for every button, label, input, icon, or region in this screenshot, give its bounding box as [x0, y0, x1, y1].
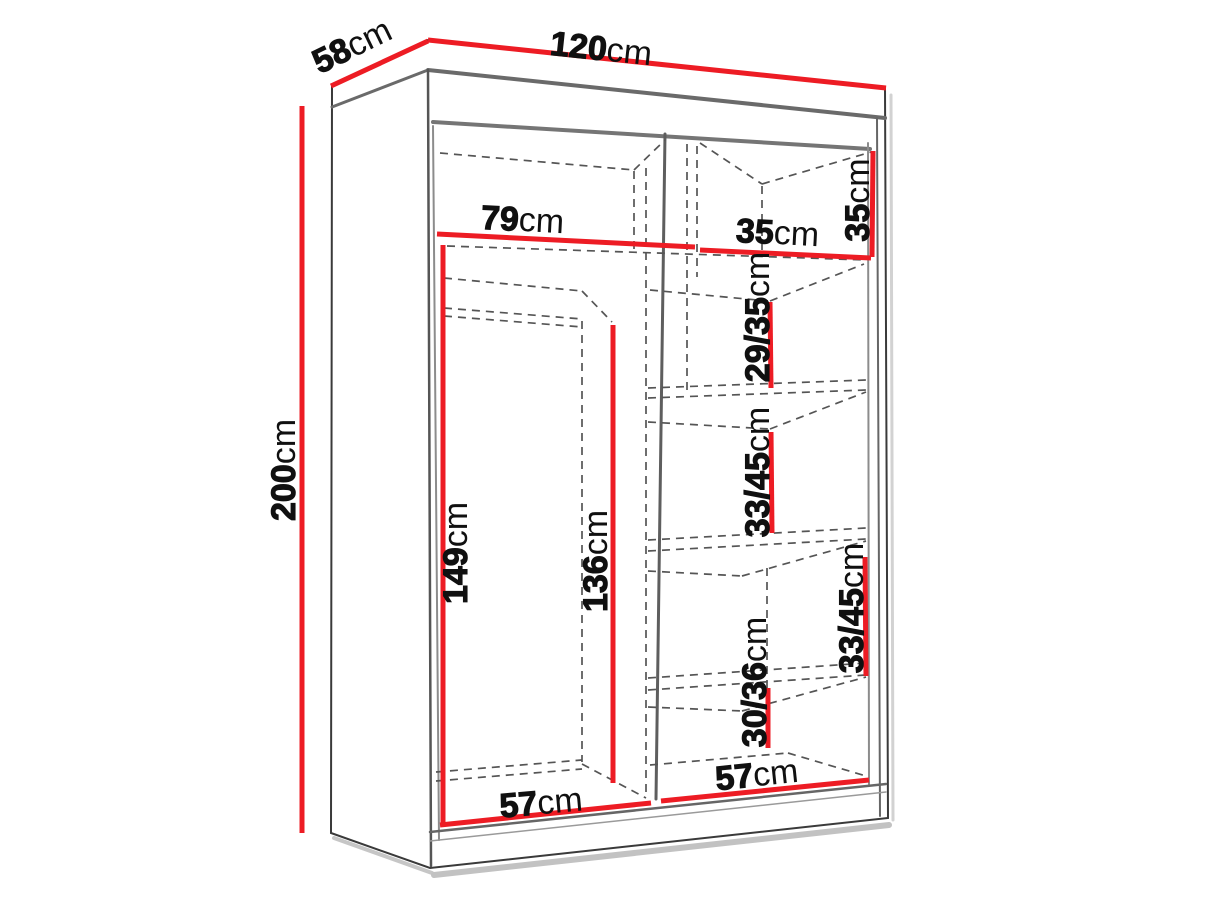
dim-label-top-right-inner-width: 35cm — [735, 212, 820, 254]
dim-label-right-shelf-2: 33/45cm — [739, 407, 777, 537]
dim-label-right-shelf-1: 29/35cm — [739, 252, 777, 382]
dim-label-top-right-inner-height: 35cm — [839, 158, 877, 241]
dim-label-right-shelf-4: 30/36cm — [736, 617, 774, 747]
diagram-canvas: 58cm 120cm 200cm 79cm 35cm 35cm 29/35cm … — [0, 0, 1214, 911]
dim-label-height: 200cm — [265, 419, 303, 521]
wardrobe-dimension-diagram: 58cm 120cm 200cm 79cm 35cm 35cm 29/35cm … — [0, 0, 1214, 911]
wardrobe-body — [331, 40, 888, 868]
dim-label-top-left-inner-width: 79cm — [480, 199, 565, 241]
dim-label-left-inner-height: 149cm — [437, 502, 475, 604]
dim-label-left-inner-back-height: 136cm — [577, 510, 615, 612]
dim-label-right-shelf-3: 33/45cm — [833, 543, 871, 673]
dim-label-bottom-left-inner-width: 57cm — [498, 780, 584, 825]
